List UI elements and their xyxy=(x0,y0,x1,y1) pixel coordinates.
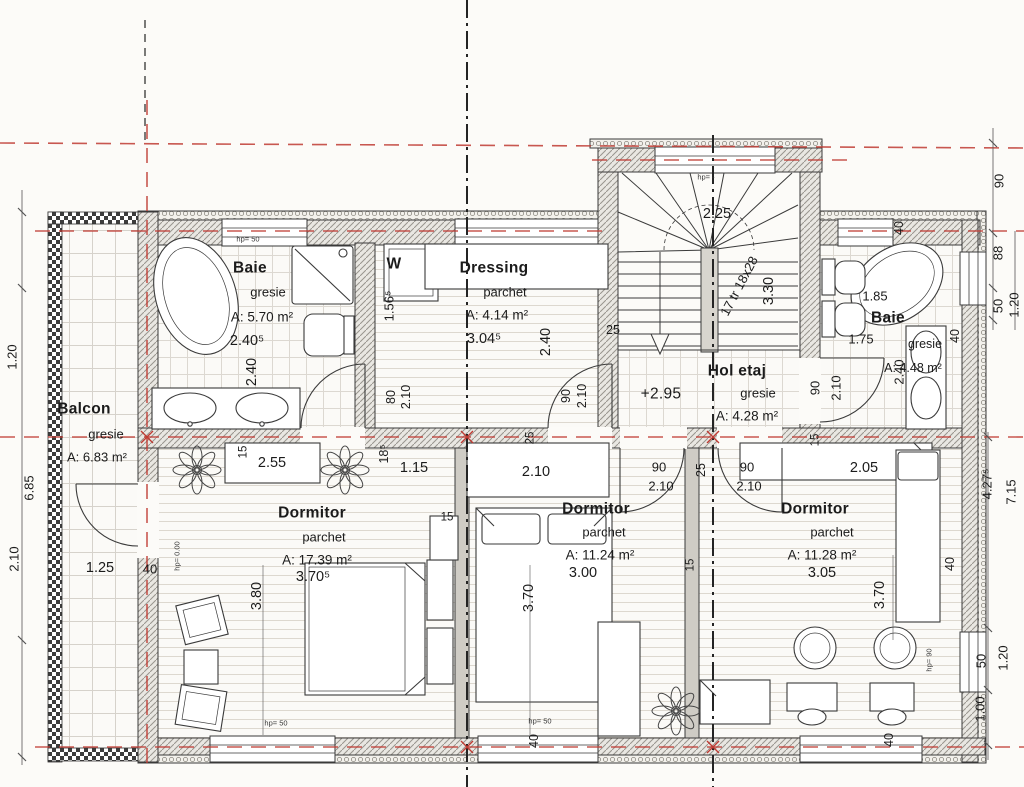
area-dormitor-mid: A: 11.24 m² xyxy=(566,548,635,562)
room-label-hol: Hol etaj xyxy=(708,363,766,379)
sill-bottom-a: hp= 50 xyxy=(264,719,287,727)
edge-right-bottom-0: 50 xyxy=(975,654,988,668)
win-dormitor-right: 40 xyxy=(944,557,957,571)
shower xyxy=(292,246,353,304)
dim-wardrobe-mid: 2.10 xyxy=(522,465,550,480)
window-baie-right-top xyxy=(838,219,893,246)
door-mid-width: 90 xyxy=(652,461,666,474)
edge-right-bottom-2: 1.00 xyxy=(974,696,987,721)
window-baie-right-side xyxy=(960,252,986,305)
finish-baie-right: gresie xyxy=(908,338,942,351)
edge-right-top-2: 50 xyxy=(992,299,1005,313)
win-baie-right-top: 40 xyxy=(893,221,906,235)
edge-right-top-0: 90 xyxy=(993,174,1006,188)
finish-dormitor-left: parchet xyxy=(302,531,345,544)
washer-label: W xyxy=(387,256,402,272)
room-label-baie-left: Baie xyxy=(233,260,267,276)
dim-baie-left-width: 2.40⁵ xyxy=(230,334,264,349)
cabinet-mid xyxy=(598,622,640,736)
edge-left-0: 1.20 xyxy=(6,344,19,369)
dim-dormitor-right-width: 3.05 xyxy=(808,566,836,581)
edge-right-mid-0: 4.27⁵ xyxy=(981,469,994,500)
dim-wall-15-b: 15 xyxy=(238,446,250,459)
dim-baie-left-depth: 2.40 xyxy=(245,358,260,386)
room-label-baie-right: Baie xyxy=(871,310,905,326)
floorplan-sheet: Baie gresie A: 5.70 m² 2.40⁵ 2.40 Dressi… xyxy=(0,0,1024,787)
dim-wall-25-b: 25 xyxy=(525,432,537,445)
stairs xyxy=(618,173,800,354)
dim-dormitor-right-depth: 3.70 xyxy=(873,581,888,609)
room-label-dormitor-left: Dormitor xyxy=(278,505,346,521)
edge-right-bottom-1: 1.20 xyxy=(997,645,1010,670)
dim-baie-right-b: 1.75 xyxy=(848,333,873,346)
win-baie-right-side: 40 xyxy=(949,329,962,343)
finish-dormitor-right: parchet xyxy=(810,526,853,539)
edge-right-mid-1: 7.15 xyxy=(1005,479,1018,504)
edge-right-top-3: 1.20 xyxy=(1008,292,1021,317)
door-dressing-width: 90 xyxy=(560,389,573,403)
stair-direction-arrow xyxy=(651,252,669,354)
dim-stairs-depth: 3.30 xyxy=(762,277,777,305)
dim-wardrobe-right: 2.05 xyxy=(850,461,878,476)
finish-baie-left: gresie xyxy=(250,286,285,299)
dim-dressing-depth: 2.40 xyxy=(539,328,554,356)
finish-dressing: parchet xyxy=(483,286,526,299)
dim-balcon-b: 40 xyxy=(143,563,157,576)
door-baie-right-height: 2.10 xyxy=(830,375,843,400)
finish-dormitor-mid: parchet xyxy=(582,526,625,539)
dim-stairs-width: 2.25 xyxy=(703,207,731,222)
dim-balcon-a: 1.25 xyxy=(86,561,114,576)
edge-left-2: 2.10 xyxy=(8,546,21,571)
door-dressing-height: 2.10 xyxy=(576,384,589,408)
dim-dormitor-left-width: 3.70⁵ xyxy=(296,570,330,585)
window-baie-left-top xyxy=(222,219,307,246)
vanity-left xyxy=(152,388,300,429)
dim-niche: 1.56⁵ xyxy=(383,291,396,322)
parapet-stairs: hp= - xyxy=(697,173,714,181)
floor-level-mark: hp= 0.00 xyxy=(173,541,181,570)
win-bottom-right: 40 xyxy=(883,733,896,747)
door-baie-left-width: 80 xyxy=(385,390,398,404)
dim-baie-right-a: 1.85 xyxy=(862,290,887,303)
dim-seg-18: 18⁵ xyxy=(378,444,391,463)
window-dressing-top xyxy=(455,219,598,246)
door-right-width: 90 xyxy=(740,461,754,474)
dim-wall-25-a: 25 xyxy=(695,463,708,477)
dim-dormitor-mid-width: 3.00 xyxy=(569,566,597,581)
room-label-balcon: Balcon xyxy=(57,401,110,417)
door-right-height: 2.10 xyxy=(736,480,761,493)
floorplan-drawing xyxy=(0,0,1024,787)
dim-wall-15-a: 15 xyxy=(810,434,822,447)
finish-hol: gresie xyxy=(740,387,775,400)
window-dorm-right-bottom xyxy=(800,736,922,762)
edge-right-top-1: 88 xyxy=(992,246,1005,260)
area-dormitor-right: A: 11.28 m² xyxy=(788,548,857,562)
dim-dormitor-mid-depth: 3.70 xyxy=(522,584,537,612)
win-bottom-mid: 40 xyxy=(528,734,541,748)
window-dorm-left-bottom xyxy=(210,736,335,762)
stair-spine-wall xyxy=(701,248,718,352)
area-balcon: A: 6.83 m² xyxy=(67,451,127,464)
dim-wall-25-stairs: 25 xyxy=(606,324,620,337)
room-label-dressing: Dressing xyxy=(460,260,529,276)
area-dressing: A: 4.14 m² xyxy=(466,308,528,322)
edge-left-1: 6.85 xyxy=(23,475,36,500)
dim-wardrobe-left: 2.55 xyxy=(258,456,286,471)
area-baie-left: A: 5.70 m² xyxy=(231,310,293,324)
dim-seg-115: 1.15 xyxy=(400,461,428,476)
door-baie-left-height: 2.10 xyxy=(400,385,413,409)
toilet-left xyxy=(304,314,354,356)
area-hol: A: 4.28 m² xyxy=(716,409,778,423)
door-mid-height: 2.10 xyxy=(648,480,673,493)
finish-balcon: gresie xyxy=(88,428,123,441)
closet-right xyxy=(700,680,770,724)
dim-wall-15-d: 15 xyxy=(685,559,697,572)
sill-bottom-b: hp= 50 xyxy=(528,717,551,725)
dim-wall-15-c: 15 xyxy=(441,512,454,524)
floor-balcon xyxy=(62,224,138,748)
wall-stair-left xyxy=(598,172,618,437)
room-label-dormitor-mid: Dormitor xyxy=(562,501,630,517)
room-label-dormitor-right: Dormitor xyxy=(781,501,849,517)
dim-dressing-width: 3.04⁵ xyxy=(467,332,501,347)
door-baie-right-width: 90 xyxy=(809,381,822,395)
area-dormitor-left: A: 17.39 m² xyxy=(282,553,352,567)
dim-baie-right-depth: 2.40 xyxy=(893,359,906,384)
sill-top-left: hp= 50 xyxy=(236,235,259,243)
bed-right xyxy=(896,450,940,622)
sill-right: hp= 90 xyxy=(925,648,933,671)
dim-dormitor-left-depth: 3.80 xyxy=(250,582,265,610)
level-hol: +2.95 xyxy=(641,386,682,402)
toilet-right xyxy=(822,259,865,295)
